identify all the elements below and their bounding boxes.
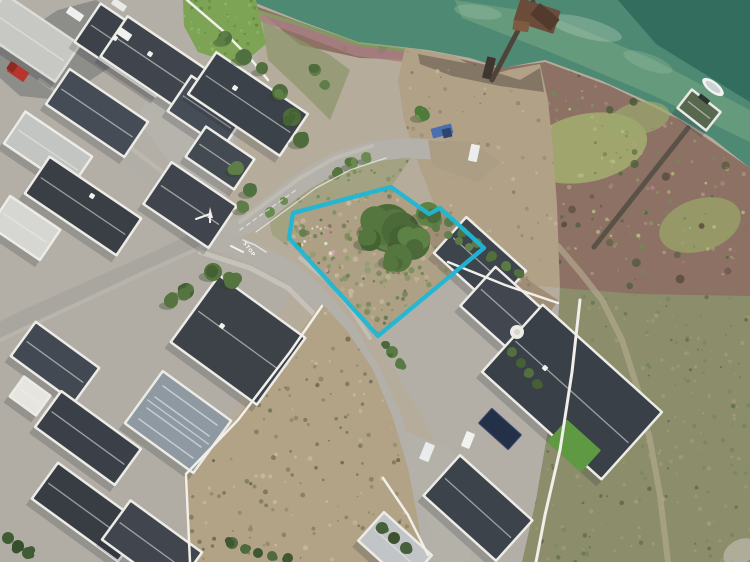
corner-bush: [388, 532, 400, 544]
hedge-corner: [2, 532, 14, 544]
hedge-bush: [507, 347, 517, 357]
bush: [299, 229, 307, 237]
hedge-bush: [516, 358, 526, 368]
bush: [432, 224, 440, 232]
aerial-photo-container: STOP: [0, 0, 750, 562]
gazebo-roof-top: [514, 329, 520, 335]
bush: [455, 237, 463, 245]
aerial-photo: STOP: [0, 0, 750, 562]
lot-bush: [253, 548, 263, 558]
